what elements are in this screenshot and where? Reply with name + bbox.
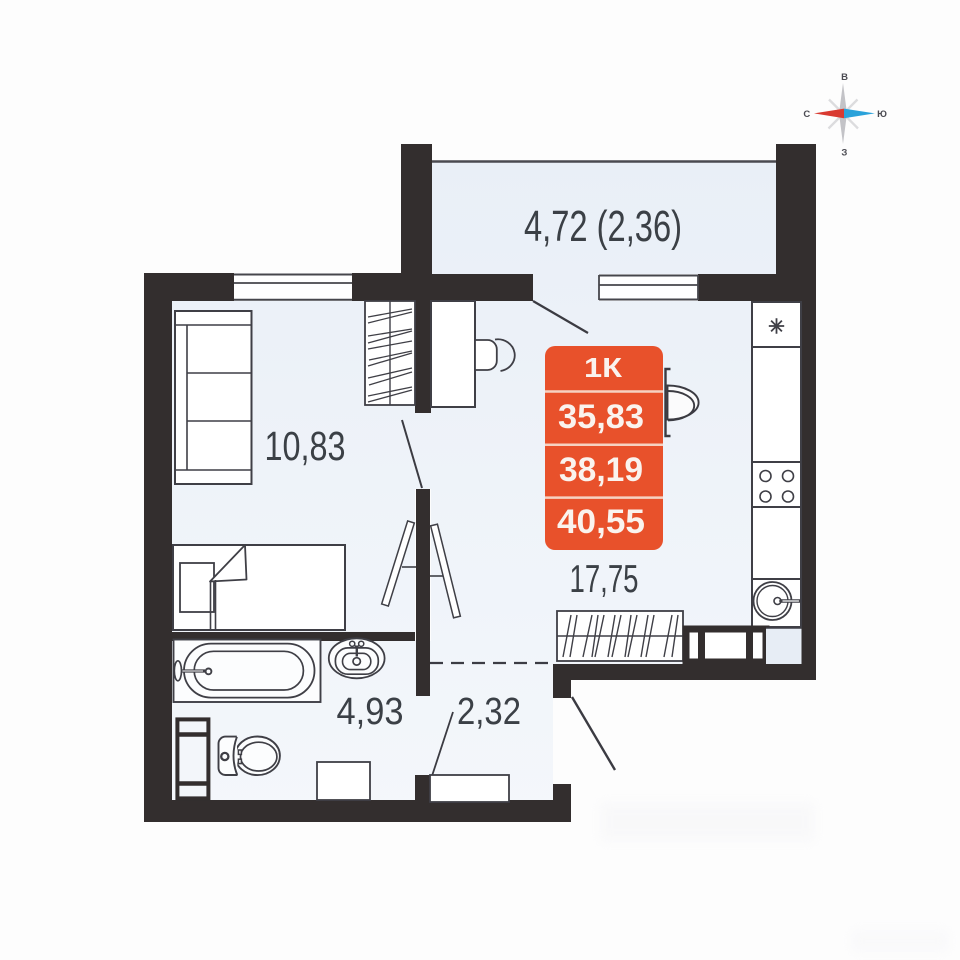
svg-text:40,55: 40,55 xyxy=(557,503,645,541)
svg-text:В: В xyxy=(841,72,848,83)
svg-text:2,32: 2,32 xyxy=(457,691,521,733)
svg-text:17,75: 17,75 xyxy=(570,558,639,601)
svg-text:С: С xyxy=(803,109,810,120)
svg-text:38,19: 38,19 xyxy=(559,451,643,489)
svg-text:1К: 1К xyxy=(584,352,623,383)
svg-text:Ю: Ю xyxy=(877,109,887,120)
svg-text:10,83: 10,83 xyxy=(265,423,346,469)
svg-text:З: З xyxy=(841,147,847,158)
svg-text:4,72 (2,36): 4,72 (2,36) xyxy=(524,202,682,251)
svg-text:35,83: 35,83 xyxy=(558,398,644,436)
svg-text:4,93: 4,93 xyxy=(337,691,404,733)
